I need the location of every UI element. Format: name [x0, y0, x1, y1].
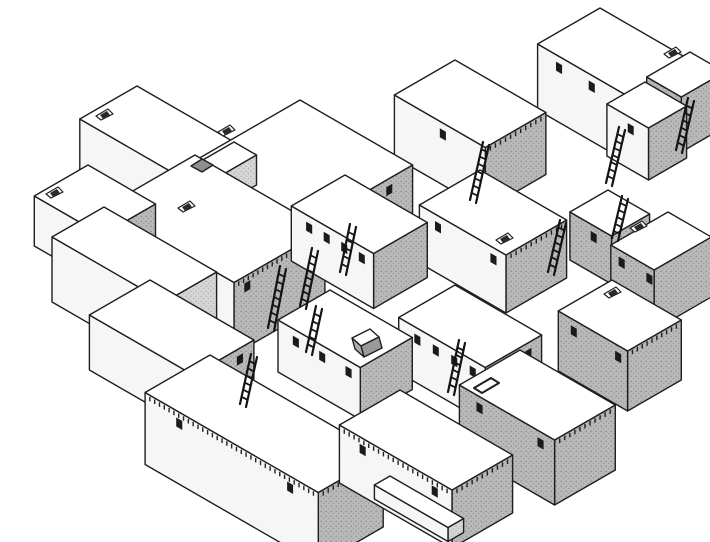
- building-house-center-right: [419, 170, 566, 313]
- settlement-axonometric-drawing: [0, 0, 710, 542]
- illustration-canvas: [0, 0, 710, 542]
- roof-vent: [218, 125, 235, 136]
